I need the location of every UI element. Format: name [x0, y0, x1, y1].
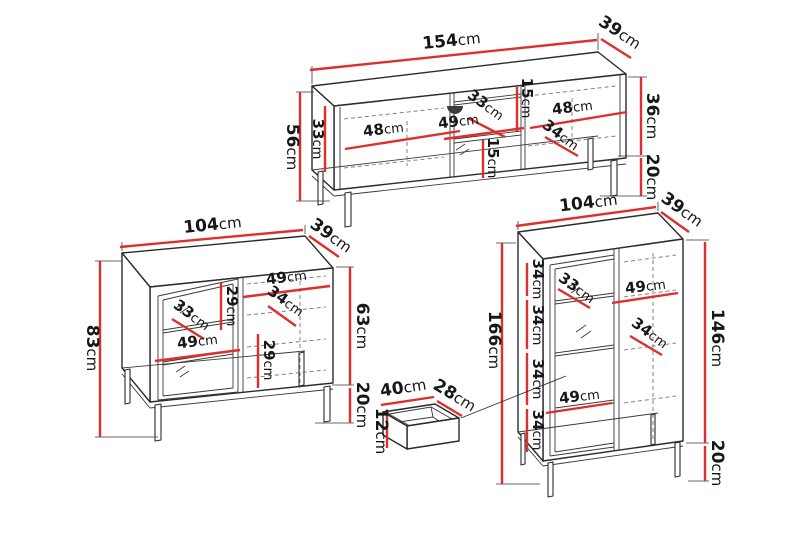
- sideboard-leg-height-label: 20cm: [352, 382, 372, 429]
- tall-shelf4-label: 34cm: [529, 410, 547, 451]
- drawer-width-label: 40cm: [379, 375, 428, 402]
- tall-cabinet-outline: [518, 213, 683, 497]
- tall-total-height-label: 166cm: [484, 311, 504, 369]
- tall-body-height-label: 146cm: [707, 309, 727, 367]
- tv-center-top-label: 15cm: [518, 78, 536, 119]
- sideboard-outline: [122, 236, 333, 441]
- diagram-canvas: 154cm 39cm 56cm 33cm 48cm 49cm 33cm 15cm…: [0, 0, 800, 533]
- tv-width-label: 154cm: [421, 28, 481, 54]
- tall-shelf3-label: 34cm: [529, 359, 547, 400]
- tv-depth-label: 39cm: [595, 12, 645, 54]
- tall-leg-height-label: 20cm: [707, 440, 727, 487]
- tall-shelf1-label: 34cm: [529, 259, 547, 300]
- sideboard-width-label: 104cm: [182, 212, 242, 238]
- tv-left-height-label: 33cm: [309, 119, 327, 160]
- tv-leg-height-label: 20cm: [642, 154, 662, 201]
- tv-body-height-label: 36cm: [642, 93, 662, 140]
- tv-center-bottom-label: 15cm: [484, 138, 502, 179]
- drawer-outline: [383, 404, 459, 449]
- sideboard-lower-shelf-label: 29cm: [260, 340, 278, 381]
- drawer-height-label: 12cm: [371, 408, 391, 455]
- sideboard-upper-shelf-label: 29cm: [223, 286, 241, 327]
- furniture-dimension-diagram: 154cm 39cm 56cm 33cm 48cm 49cm 33cm 15cm…: [0, 0, 800, 533]
- sideboard-body-height-label: 63cm: [352, 303, 372, 350]
- tall-shelf2-label: 34cm: [529, 305, 547, 346]
- sideboard-total-height-label: 83cm: [82, 325, 102, 372]
- tv-total-height-label: 56cm: [282, 124, 302, 171]
- tall-cabinet-drawing: 104cm 39cm 166cm 146cm 20cm 34cm 34cm 34…: [484, 188, 727, 497]
- sideboard-drawing: 104cm 39cm 83cm 63cm 20cm 49cm 34cm 29cm…: [82, 212, 372, 441]
